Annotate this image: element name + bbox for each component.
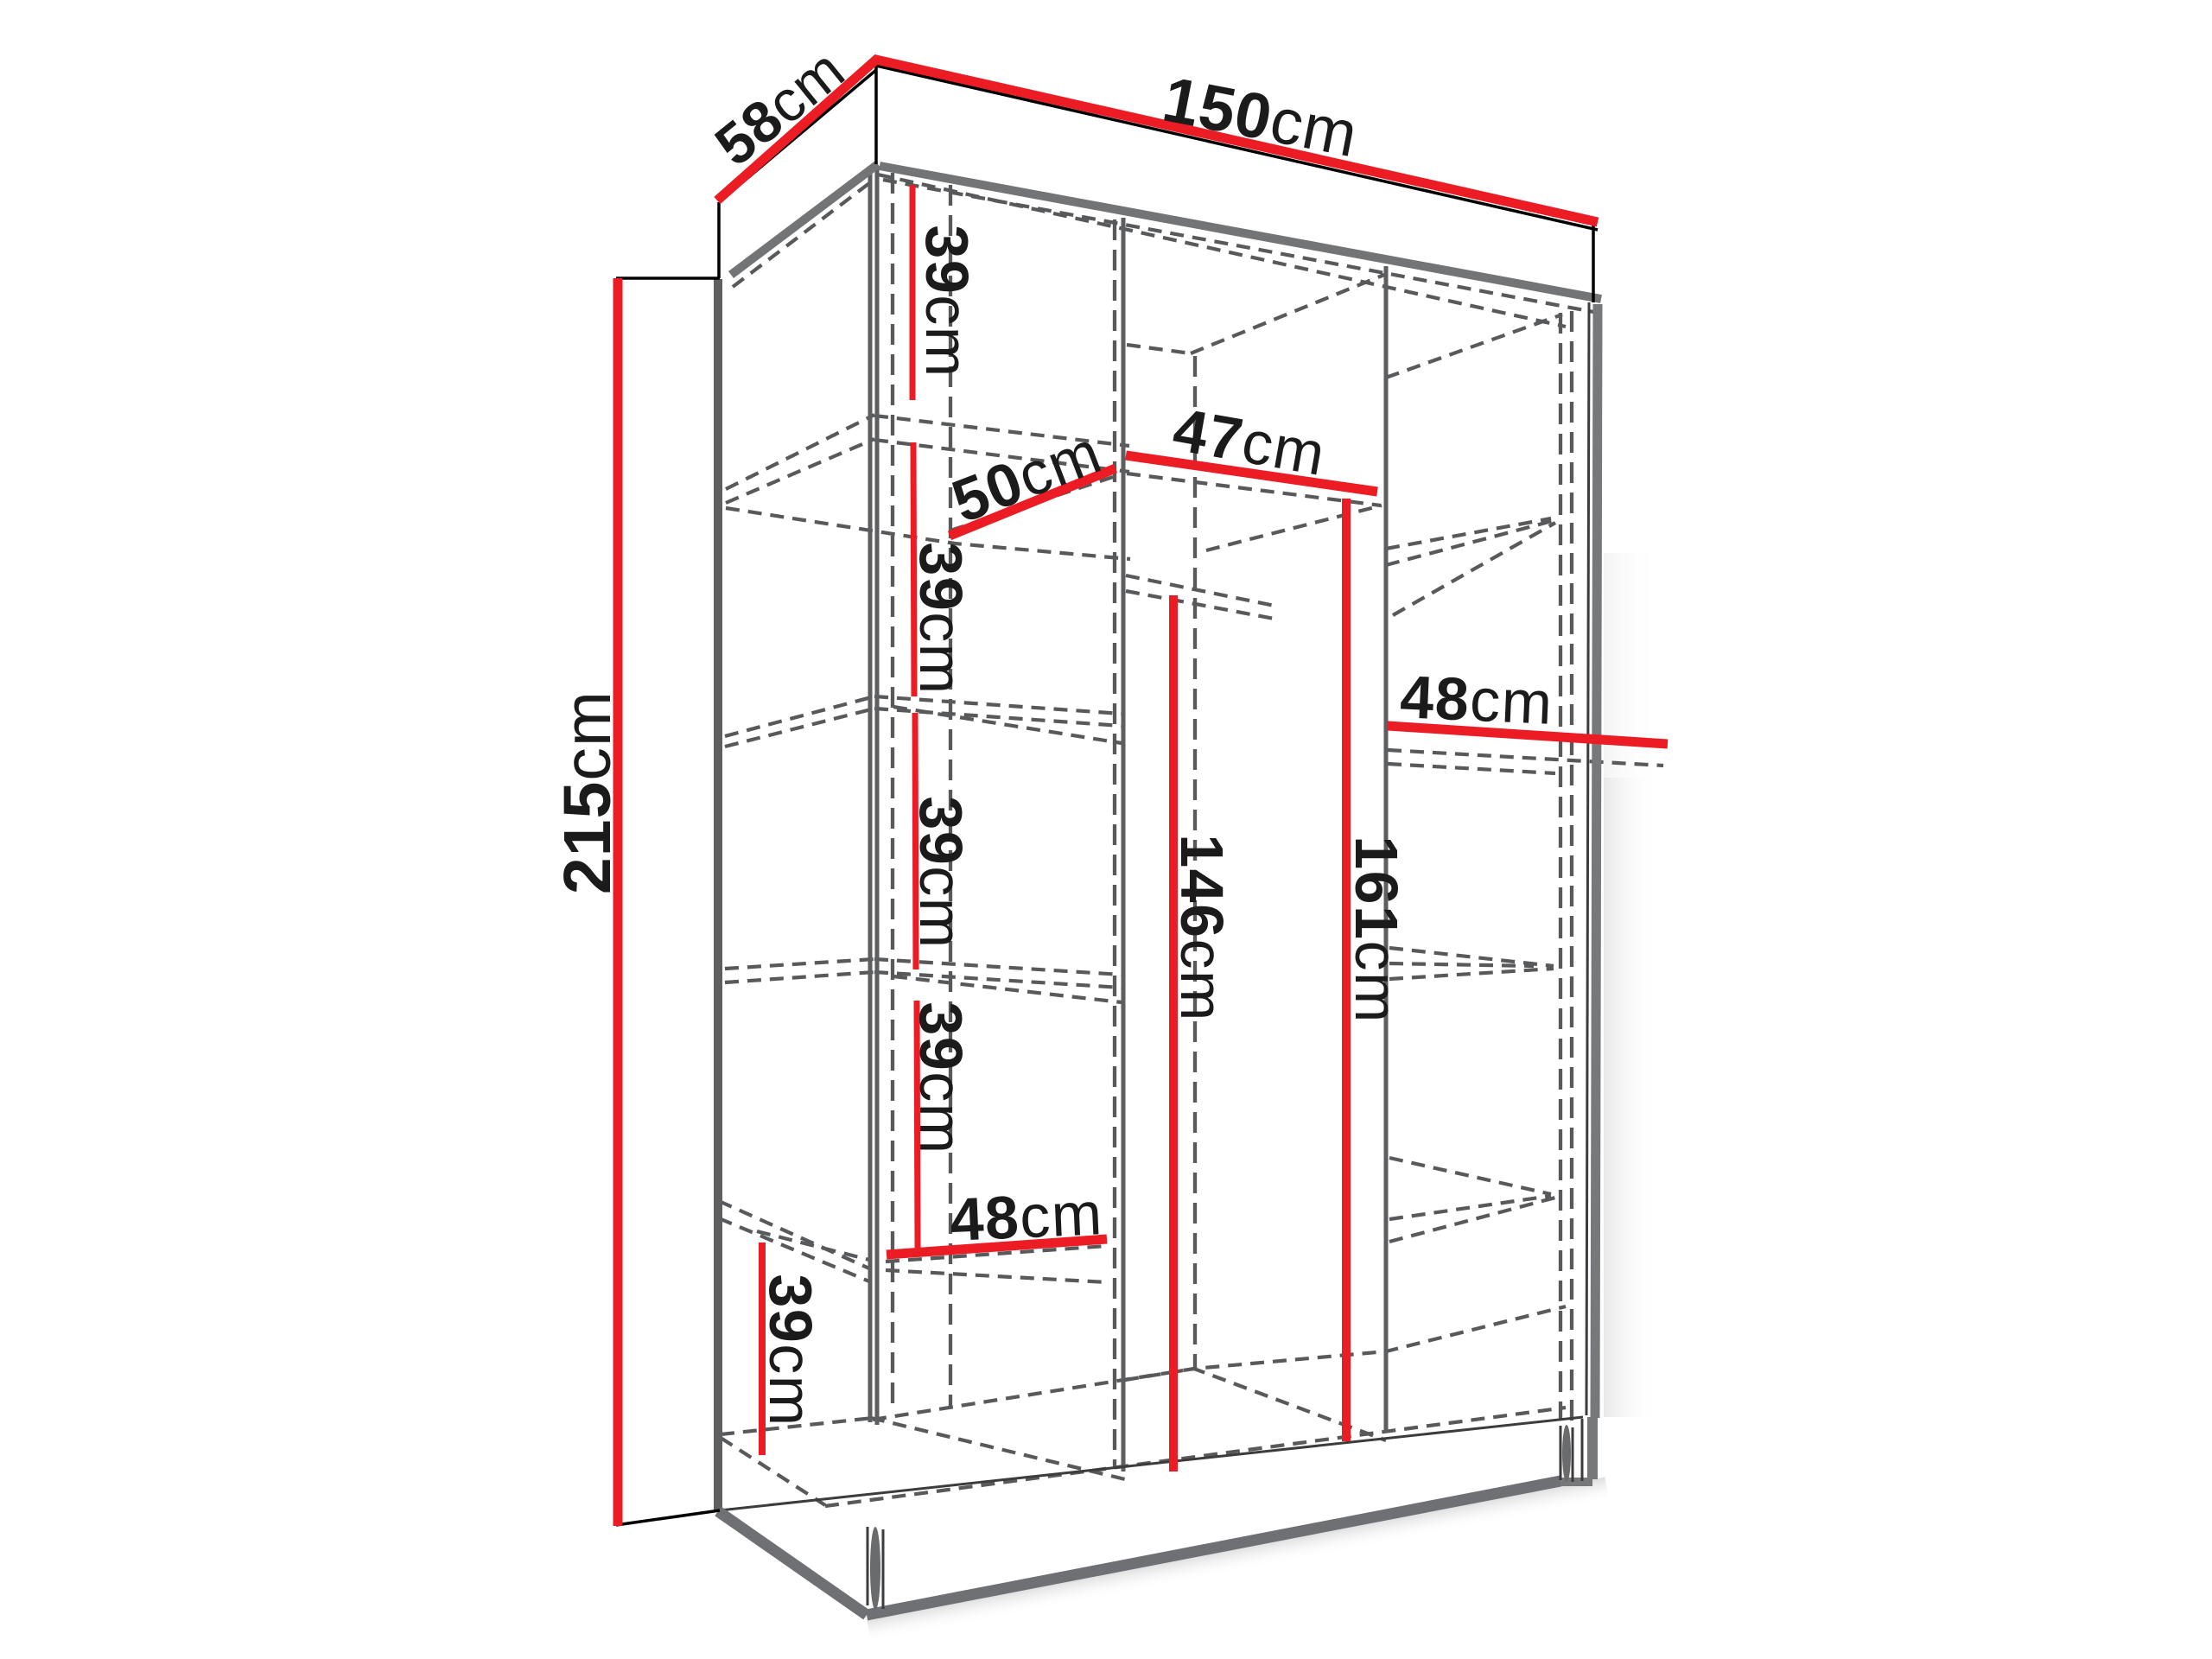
svg-text:50cm: 50cm bbox=[944, 417, 1110, 535]
svg-text:48cm: 48cm bbox=[949, 1179, 1104, 1254]
svg-text:146cm: 146cm bbox=[1168, 834, 1236, 1022]
svg-text:39cm: 39cm bbox=[907, 542, 975, 695]
svg-text:39cm: 39cm bbox=[907, 796, 975, 949]
svg-text:161cm: 161cm bbox=[1343, 836, 1410, 1024]
svg-text:58cm: 58cm bbox=[703, 37, 857, 179]
svg-text:39cm: 39cm bbox=[913, 225, 981, 378]
svg-text:39cm: 39cm bbox=[907, 1001, 975, 1154]
svg-text:48cm: 48cm bbox=[1399, 663, 1554, 737]
svg-text:215cm: 215cm bbox=[550, 690, 625, 894]
svg-text:39cm: 39cm bbox=[757, 1274, 824, 1427]
svg-text:47cm: 47cm bbox=[1168, 396, 1331, 489]
